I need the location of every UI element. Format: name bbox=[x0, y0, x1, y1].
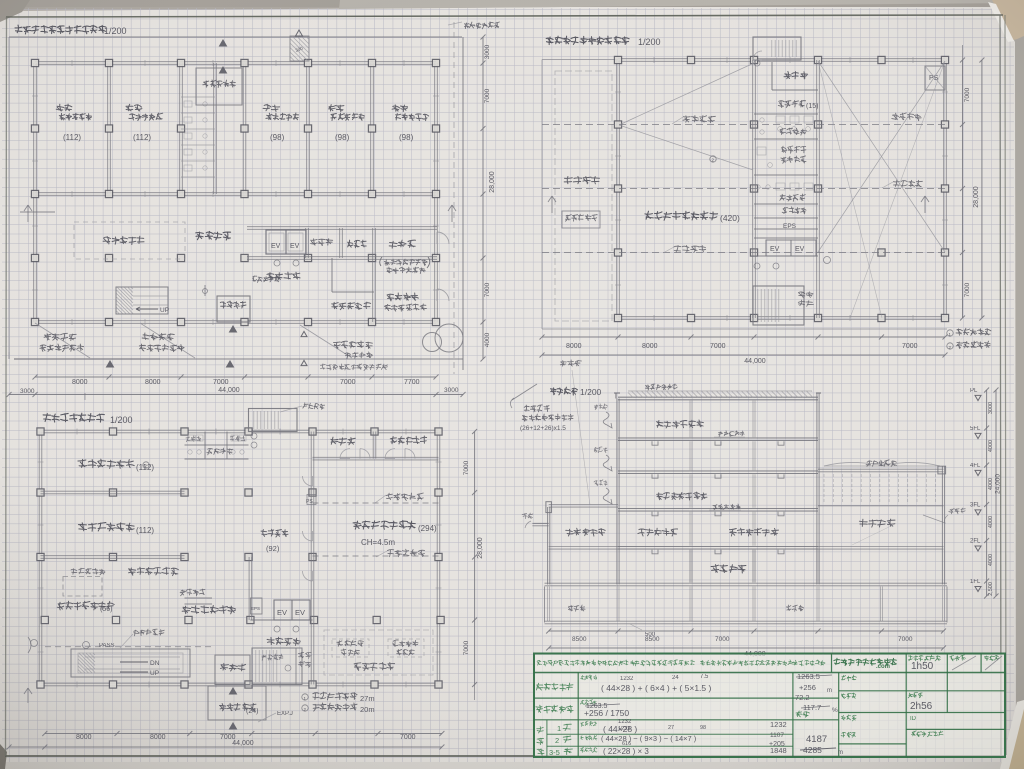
svg-text:8000: 8000 bbox=[72, 379, 88, 386]
svg-text:7000: 7000 bbox=[400, 734, 416, 741]
svg-text:1848: 1848 bbox=[770, 746, 787, 755]
svg-text:3000: 3000 bbox=[988, 402, 994, 414]
svg-text:(112): (112) bbox=[63, 133, 81, 142]
svg-text:( 22×28 ) × 3: ( 22×28 ) × 3 bbox=[603, 747, 649, 756]
svg-text:PASS: PASS bbox=[99, 643, 115, 649]
svg-text:4000: 4000 bbox=[484, 332, 491, 347]
svg-text:7000: 7000 bbox=[463, 460, 470, 475]
svg-text:8000: 8000 bbox=[566, 343, 582, 350]
svg-text:2,500: 2,500 bbox=[988, 582, 994, 596]
svg-text:( 44×28 ) − ( 9×3 ) − ( 14×7 ): ( 44×28 ) − ( 9×3 ) − ( 14×7 ) bbox=[601, 734, 697, 743]
svg-text:1h50: 1h50 bbox=[911, 661, 934, 672]
svg-text:24: 24 bbox=[672, 675, 679, 681]
svg-text:CH=4.5m: CH=4.5m bbox=[361, 538, 395, 547]
svg-text:72.2: 72.2 bbox=[795, 693, 810, 702]
svg-text:1/200: 1/200 bbox=[580, 387, 602, 397]
svg-text:28,000: 28,000 bbox=[973, 186, 980, 208]
svg-text:EV: EV bbox=[295, 608, 305, 617]
svg-text:7000: 7000 bbox=[340, 379, 356, 386]
svg-text:28,000: 28,000 bbox=[489, 171, 496, 193]
svg-text:28,000: 28,000 bbox=[477, 537, 484, 559]
svg-text:616: 616 bbox=[622, 741, 631, 747]
svg-text:2: 2 bbox=[555, 736, 559, 745]
svg-text:3000: 3000 bbox=[484, 44, 491, 59]
svg-text:24,000: 24,000 bbox=[995, 474, 1002, 494]
svg-text:7.5: 7.5 bbox=[700, 674, 709, 680]
svg-text:8500: 8500 bbox=[645, 636, 660, 643]
svg-text:(294): (294) bbox=[418, 524, 437, 533]
svg-text:PS: PS bbox=[306, 499, 313, 505]
svg-text:8500: 8500 bbox=[572, 636, 587, 643]
svg-text:ID: ID bbox=[910, 716, 917, 722]
svg-text:.com: .com bbox=[876, 664, 890, 670]
svg-text:%: % bbox=[832, 707, 838, 714]
svg-text:4FL: 4FL bbox=[970, 463, 981, 469]
svg-text:7700: 7700 bbox=[404, 379, 420, 386]
svg-text:44,000: 44,000 bbox=[232, 740, 254, 747]
svg-text:(24): (24) bbox=[246, 708, 258, 715]
svg-text:5FL: 5FL bbox=[970, 426, 981, 432]
svg-text:(112): (112) bbox=[133, 133, 151, 142]
svg-text:PL: PL bbox=[970, 388, 978, 394]
svg-text:(98): (98) bbox=[335, 133, 350, 142]
svg-text:7000: 7000 bbox=[463, 640, 470, 655]
svg-text:UP: UP bbox=[150, 670, 159, 677]
svg-text:+256 / 1750: +256 / 1750 bbox=[584, 708, 629, 718]
svg-text:8000: 8000 bbox=[76, 734, 92, 741]
svg-text:1232: 1232 bbox=[618, 726, 630, 732]
svg-text:3000: 3000 bbox=[444, 387, 459, 394]
svg-text:7000: 7000 bbox=[213, 379, 229, 386]
svg-text:7000: 7000 bbox=[898, 636, 913, 643]
svg-text:98: 98 bbox=[700, 725, 706, 731]
svg-text:27m: 27m bbox=[360, 694, 375, 703]
svg-text:3FL: 3FL bbox=[970, 503, 981, 509]
svg-text:(26+12+26)x1.5: (26+12+26)x1.5 bbox=[520, 425, 566, 432]
svg-text:(112): (112) bbox=[136, 526, 154, 535]
svg-text:4187: 4187 bbox=[806, 734, 827, 745]
svg-text:(15): (15) bbox=[806, 103, 818, 110]
svg-text:1232: 1232 bbox=[620, 676, 634, 682]
svg-text:4000: 4000 bbox=[988, 440, 994, 452]
svg-text:44,000: 44,000 bbox=[744, 358, 766, 365]
svg-text:( 44×28 ) + ( 6×4 ) + ( 5×1.5: ( 44×28 ) + ( 6×4 ) + ( 5×1.5 ) bbox=[601, 683, 711, 693]
svg-text:7000: 7000 bbox=[715, 636, 730, 643]
svg-text:7000: 7000 bbox=[710, 343, 726, 350]
svg-text:1107: 1107 bbox=[770, 732, 784, 739]
svg-text:8000: 8000 bbox=[150, 734, 166, 741]
svg-text:EXP.J: EXP.J bbox=[277, 711, 293, 717]
svg-text:3-5: 3-5 bbox=[549, 748, 560, 757]
svg-text:(92): (92) bbox=[266, 544, 280, 553]
svg-text:EV: EV bbox=[770, 246, 780, 253]
svg-text:EPS: EPS bbox=[783, 223, 797, 230]
svg-text:8000: 8000 bbox=[642, 343, 658, 350]
svg-text:8000: 8000 bbox=[145, 379, 161, 386]
svg-text:20m: 20m bbox=[360, 705, 375, 714]
svg-text:7000: 7000 bbox=[484, 88, 491, 103]
svg-text:4000: 4000 bbox=[988, 554, 994, 566]
svg-text:4000: 4000 bbox=[988, 478, 994, 490]
svg-text:1/200: 1/200 bbox=[638, 37, 661, 47]
svg-text:(420): (420) bbox=[720, 213, 740, 223]
svg-text:44,000: 44,000 bbox=[218, 387, 240, 394]
svg-text:(98): (98) bbox=[270, 133, 285, 142]
svg-text:7000: 7000 bbox=[484, 282, 491, 297]
svg-text:2FL: 2FL bbox=[970, 539, 981, 545]
svg-text:3000: 3000 bbox=[20, 388, 35, 395]
svg-text:EV: EV bbox=[277, 608, 287, 617]
svg-text:7000: 7000 bbox=[964, 87, 971, 102]
svg-text:(98): (98) bbox=[399, 133, 414, 142]
svg-text:2h56: 2h56 bbox=[910, 701, 933, 712]
svg-text:1/200: 1/200 bbox=[110, 415, 133, 425]
svg-text:27: 27 bbox=[668, 725, 674, 731]
svg-text:EPS: EPS bbox=[251, 606, 260, 611]
svg-text:UP: UP bbox=[160, 307, 169, 314]
svg-text:(56): (56) bbox=[100, 606, 112, 613]
svg-text:7000: 7000 bbox=[964, 282, 971, 297]
svg-text:1232: 1232 bbox=[618, 719, 632, 725]
svg-text:1232: 1232 bbox=[770, 720, 787, 729]
svg-text:m: m bbox=[838, 750, 843, 756]
svg-text:+256: +256 bbox=[799, 683, 816, 692]
svg-text:7000: 7000 bbox=[902, 343, 918, 350]
svg-text:1/200: 1/200 bbox=[104, 26, 127, 36]
svg-text:m: m bbox=[827, 688, 832, 694]
svg-text:EV: EV bbox=[271, 243, 281, 250]
svg-text:4000: 4000 bbox=[988, 516, 994, 528]
svg-text:EV: EV bbox=[795, 246, 805, 253]
svg-text:DN: DN bbox=[150, 660, 160, 667]
svg-text:EV: EV bbox=[290, 243, 300, 250]
svg-text:1: 1 bbox=[557, 724, 561, 733]
svg-text:1FL: 1FL bbox=[970, 579, 981, 585]
